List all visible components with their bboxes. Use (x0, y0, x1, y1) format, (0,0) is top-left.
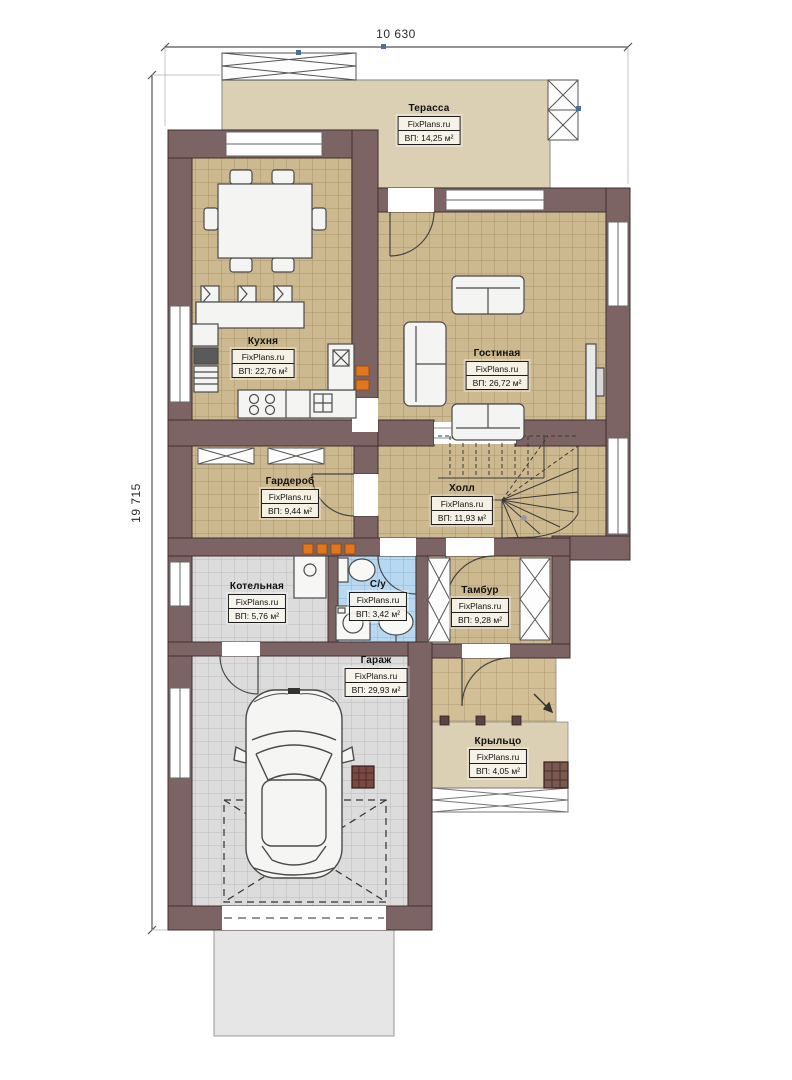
room-name: Кухня (232, 336, 295, 347)
room-brand: FixPlans.ru (467, 362, 528, 376)
room-label-living: Гостиная FixPlans.ru ВП: 26,72 м² (466, 348, 529, 391)
garage-flue (352, 766, 374, 788)
bar-stools (201, 286, 292, 302)
room-label-hall: Холл FixPlans.ru ВП: 11,93 м² (431, 483, 493, 526)
room-label-boiler: Котельная FixPlans.ru ВП: 5,76 м² (228, 581, 286, 624)
sofa-left (404, 322, 446, 406)
dimension-width-label: 10 630 (376, 27, 416, 41)
room-info-box: FixPlans.ru ВП: 22,76 м² (232, 349, 295, 378)
room-area: ВП: 26,72 м² (467, 376, 528, 389)
loveseat-top (452, 276, 524, 314)
wall-left-exterior (168, 130, 192, 930)
awning-hatch (222, 50, 356, 80)
room-name: Гостиная (466, 348, 529, 359)
room-label-wardrobe: Гардероб FixPlans.ru ВП: 9,44 м² (261, 476, 319, 519)
room-name: Холл (431, 483, 493, 494)
room-brand: FixPlans.ru (399, 117, 460, 131)
room-info-box: FixPlans.ru ВП: 5,76 м² (228, 594, 286, 623)
wall-living-hall-stub-right (516, 420, 606, 446)
wall-kitchen-right-upper (352, 130, 378, 398)
car (234, 688, 354, 878)
wall-garage-top (168, 642, 432, 656)
entry-landing-floor (432, 658, 556, 722)
kitchen-counter-bottom (238, 390, 356, 418)
room-area: ВП: 29,93 м² (346, 683, 407, 696)
dining-table-set (204, 170, 326, 272)
dimension-height-label: 19 715 (129, 471, 143, 535)
room-name: Гардероб (261, 476, 319, 487)
room-label-porch: Крыльцо FixPlans.ru ВП: 4,05 м² (469, 736, 527, 779)
room-name: С/у (349, 579, 407, 590)
room-brand: FixPlans.ru (229, 595, 285, 609)
terrace-steps-hatch (548, 80, 581, 140)
room-area: ВП: 22,76 м² (233, 364, 294, 377)
loveseat-bottom (452, 404, 524, 440)
room-area: ВП: 5,76 м² (229, 609, 285, 622)
room-name: Терасса (398, 103, 461, 114)
floor-plan-svg (0, 0, 792, 1080)
wall-wardrobe-right-a (354, 446, 378, 474)
window-boiler-left (170, 562, 190, 606)
room-info-box: FixPlans.ru ВП: 29,93 м² (345, 668, 408, 697)
room-label-wc: С/у FixPlans.ru ВП: 3,42 м² (349, 579, 407, 622)
room-name: Гараж (345, 655, 408, 666)
porch-pillar (544, 762, 568, 788)
room-info-box: FixPlans.ru ВП: 9,28 м² (451, 598, 509, 627)
room-info-box: FixPlans.ru ВП: 9,44 м² (261, 489, 319, 518)
room-name: Котельная (228, 581, 286, 592)
wall-mid-horizontal (168, 538, 570, 556)
room-area: ВП: 4,05 м² (470, 764, 526, 777)
room-info-box: FixPlans.ru ВП: 11,93 м² (431, 496, 493, 525)
window-kitchen-top (226, 132, 322, 156)
room-area: ВП: 14,25 м² (399, 131, 460, 144)
room-label-tambour: Тамбур FixPlans.ru ВП: 9,28 м² (451, 585, 509, 628)
room-brand: FixPlans.ru (452, 599, 508, 613)
wall-living-hall-stub-left (378, 420, 434, 446)
room-area: ВП: 9,44 м² (262, 504, 318, 517)
room-brand: FixPlans.ru (346, 669, 407, 683)
room-name: Крыльцо (469, 736, 527, 747)
window-garage-left (170, 688, 190, 778)
wall-kitchen-wardrobe (168, 420, 378, 446)
window-kitchen-left (170, 306, 190, 402)
room-info-box: FixPlans.ru ВП: 3,42 м² (349, 592, 407, 621)
room-area: ВП: 3,42 м² (350, 607, 406, 620)
room-brand: FixPlans.ru (233, 350, 294, 364)
wall-wc-tambour (416, 556, 428, 642)
room-brand: FixPlans.ru (470, 750, 526, 764)
room-info-box: FixPlans.ru ВП: 14,25 м² (398, 116, 461, 145)
room-label-terrace: Терасса FixPlans.ru ВП: 14,25 м² (398, 103, 461, 146)
room-info-box: FixPlans.ru ВП: 4,05 м² (469, 749, 527, 778)
room-brand: FixPlans.ru (350, 593, 406, 607)
cad-node-marker (521, 515, 527, 521)
room-label-garage: Гараж FixPlans.ru ВП: 29,93 м² (345, 655, 408, 698)
window-hall-right (608, 438, 628, 534)
fridge-sink-column (192, 324, 218, 392)
room-name: Тамбур (451, 585, 509, 596)
window-living-top (446, 190, 544, 210)
floor-plan-page: { "title": "План первого этажа", "brand"… (0, 0, 792, 1080)
room-brand: FixPlans.ru (432, 497, 492, 511)
sink-counter-right (328, 344, 354, 390)
room-info-box: FixPlans.ru ВП: 26,72 м² (466, 361, 529, 390)
wall-garage-right (408, 642, 432, 930)
room-label-kitchen: Кухня FixPlans.ru ВП: 22,76 м² (232, 336, 295, 379)
room-area: ВП: 9,28 м² (452, 613, 508, 626)
boiler-unit (294, 556, 326, 598)
room-area: ВП: 11,93 м² (432, 511, 492, 524)
porch-canopy-hatch (432, 788, 568, 812)
driveway-apron (214, 930, 394, 1036)
window-living-right (608, 222, 628, 306)
wall-wardrobe-right-b (354, 516, 378, 538)
room-brand: FixPlans.ru (262, 490, 318, 504)
